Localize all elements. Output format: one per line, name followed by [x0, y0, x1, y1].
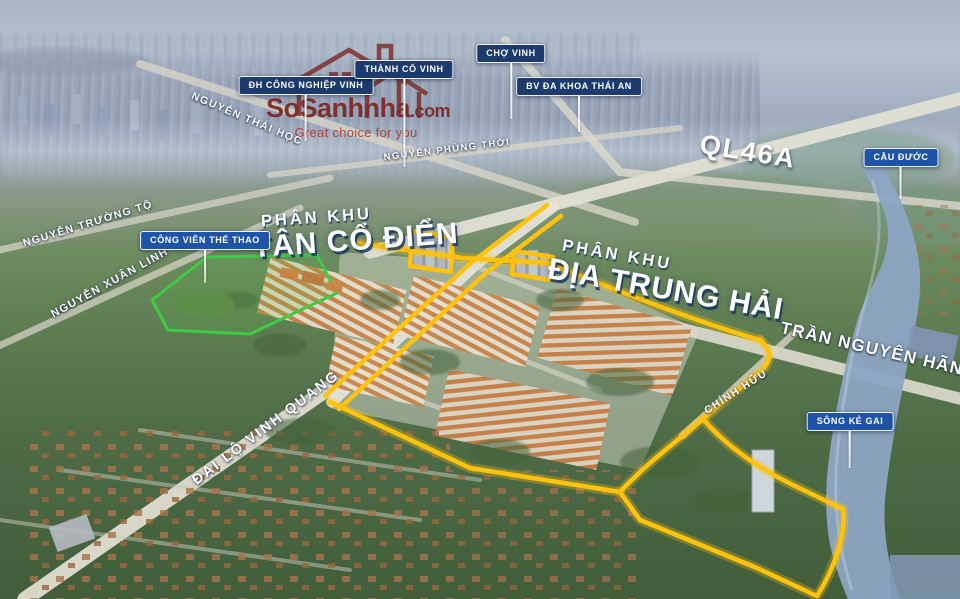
- poi-pole: [510, 63, 512, 119]
- poi-pole: [900, 167, 902, 199]
- poi-badge-song-ke-gai: SÔNG KẺ GAI: [807, 412, 894, 468]
- poi-label: CHỢ VINH: [476, 44, 545, 63]
- poi-pole: [305, 95, 307, 141]
- poi-badge-cong-vien-the-thao: CÔNG VIÊN THỂ THAO: [140, 231, 270, 283]
- poi-pole: [849, 431, 851, 468]
- poi-label: THÀNH CỔ VINH: [354, 60, 453, 79]
- poi-badge-dh-cong-nghiep-vinh: ĐH CÔNG NGHIỆP VINH: [239, 76, 374, 141]
- poi-label: CẦU ĐƯỚC: [864, 148, 939, 167]
- poi-pole: [204, 250, 206, 283]
- poi-badge-thanh-co-vinh: THÀNH CỔ VINH: [354, 60, 453, 167]
- poi-label: CÔNG VIÊN THỂ THAO: [140, 231, 270, 250]
- poi-label: SÔNG KẺ GAI: [807, 412, 894, 431]
- poi-pole: [578, 96, 580, 132]
- poi-badge-bv-da-khoa-thai-an: BV ĐA KHOA THÁI AN: [516, 77, 642, 132]
- poi-pole: [403, 79, 405, 167]
- poi-label: ĐH CÔNG NGHIỆP VINH: [239, 76, 374, 95]
- poi-label: BV ĐA KHOA THÁI AN: [516, 77, 642, 96]
- poi-badge-cau-duoc: CẦU ĐƯỚC: [864, 148, 939, 199]
- aerial-masterplan-map: SoSanhnha.com Great choice for you ĐH CÔ…: [0, 0, 960, 599]
